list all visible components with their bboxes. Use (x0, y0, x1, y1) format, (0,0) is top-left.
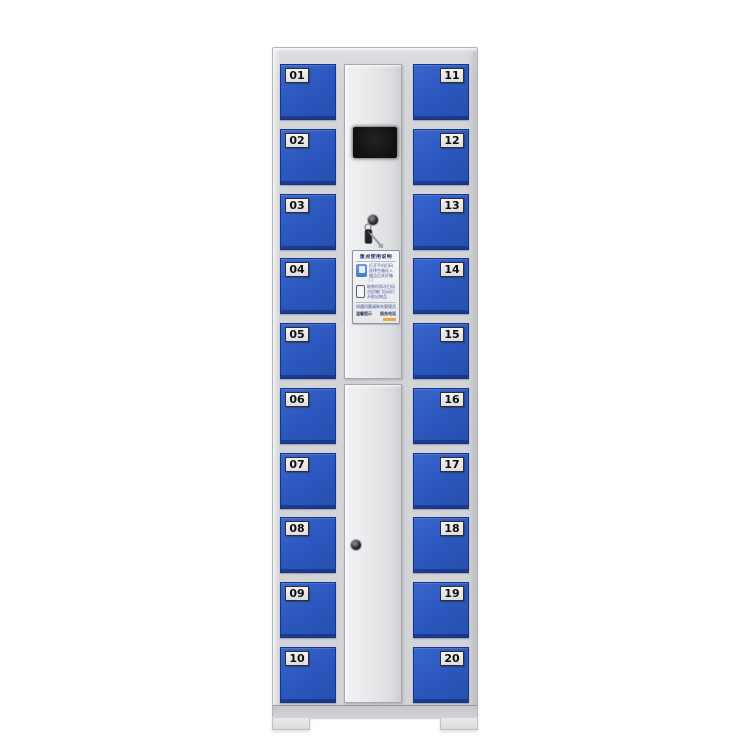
door-number-plate: 19 (440, 586, 464, 601)
locker-door-14: 14 (413, 258, 469, 314)
left-foot (272, 718, 310, 730)
door-number-plate: 09 (285, 586, 309, 601)
sticker-step1-text: 打开手机扫码选择空箱存入物品后关好箱门 (369, 264, 396, 283)
phone-outline-icon (356, 285, 365, 298)
hanging-keys-icon (360, 223, 390, 253)
right-foot (440, 718, 478, 730)
door-number-plate: 01 (285, 68, 309, 83)
sticker-accent-bar (383, 318, 396, 321)
door-number-plate: 15 (440, 327, 464, 342)
locker-door-09: 09 (280, 582, 336, 638)
door-number-plate: 12 (440, 133, 464, 148)
locker-door-15: 15 (413, 323, 469, 379)
door-number-plate: 06 (285, 392, 309, 407)
sticker-step2-text: 取物时再次扫码对应箱门自动打开取出物品 (367, 285, 396, 299)
locker-door-20: 20 (413, 647, 469, 703)
locker-product-photo: 01 02 03 04 05 06 07 08 09 10 11 12 13 1… (0, 0, 750, 750)
locker-door-10: 10 (280, 647, 336, 703)
door-number-plate: 02 (285, 133, 309, 148)
locker-door-19: 19 (413, 582, 469, 638)
locker-door-04: 04 (280, 258, 336, 314)
door-number-plate: 13 (440, 198, 464, 213)
locker-door-06: 06 (280, 388, 336, 444)
sticker-title: 重点使用说明 (356, 254, 396, 262)
door-number-plate: 14 (440, 262, 464, 277)
door-number-plate: 20 (440, 651, 464, 666)
locker-door-05: 05 (280, 323, 336, 379)
door-number-plate: 16 (440, 392, 464, 407)
locker-door-16: 16 (413, 388, 469, 444)
door-number-plate: 17 (440, 457, 464, 472)
door-number-plate: 18 (440, 521, 464, 536)
base-kick-panel (273, 705, 477, 719)
door-number-plate: 05 (285, 327, 309, 342)
locker-door-13: 13 (413, 194, 469, 250)
display-screen (353, 127, 397, 158)
locker-door-17: 17 (413, 453, 469, 509)
sticker-note: 如遇问题请联系管理员 (356, 302, 396, 309)
door-number-plate: 04 (285, 262, 309, 277)
locker-door-02: 02 (280, 129, 336, 185)
lower-key-lock (351, 540, 361, 550)
door-number-plate: 10 (285, 651, 309, 666)
phone-icon (356, 264, 367, 277)
door-number-plate: 07 (285, 457, 309, 472)
locker-door-08: 08 (280, 517, 336, 573)
instruction-sticker: 重点使用说明 打开手机扫码选择空箱存入物品后关好箱门 取物时再次扫码对应箱门自动… (352, 250, 400, 324)
locker-door-18: 18 (413, 517, 469, 573)
locker-door-01: 01 (280, 64, 336, 120)
sticker-footer-left: 温馨提示 (356, 311, 372, 316)
door-number-plate: 11 (440, 68, 464, 83)
locker-door-07: 07 (280, 453, 336, 509)
sticker-footer-right: 服务电话 (380, 311, 396, 316)
door-number-plate: 08 (285, 521, 309, 536)
locker-door-11: 11 (413, 64, 469, 120)
door-number-plate: 03 (285, 198, 309, 213)
locker-door-03: 03 (280, 194, 336, 250)
locker-door-12: 12 (413, 129, 469, 185)
